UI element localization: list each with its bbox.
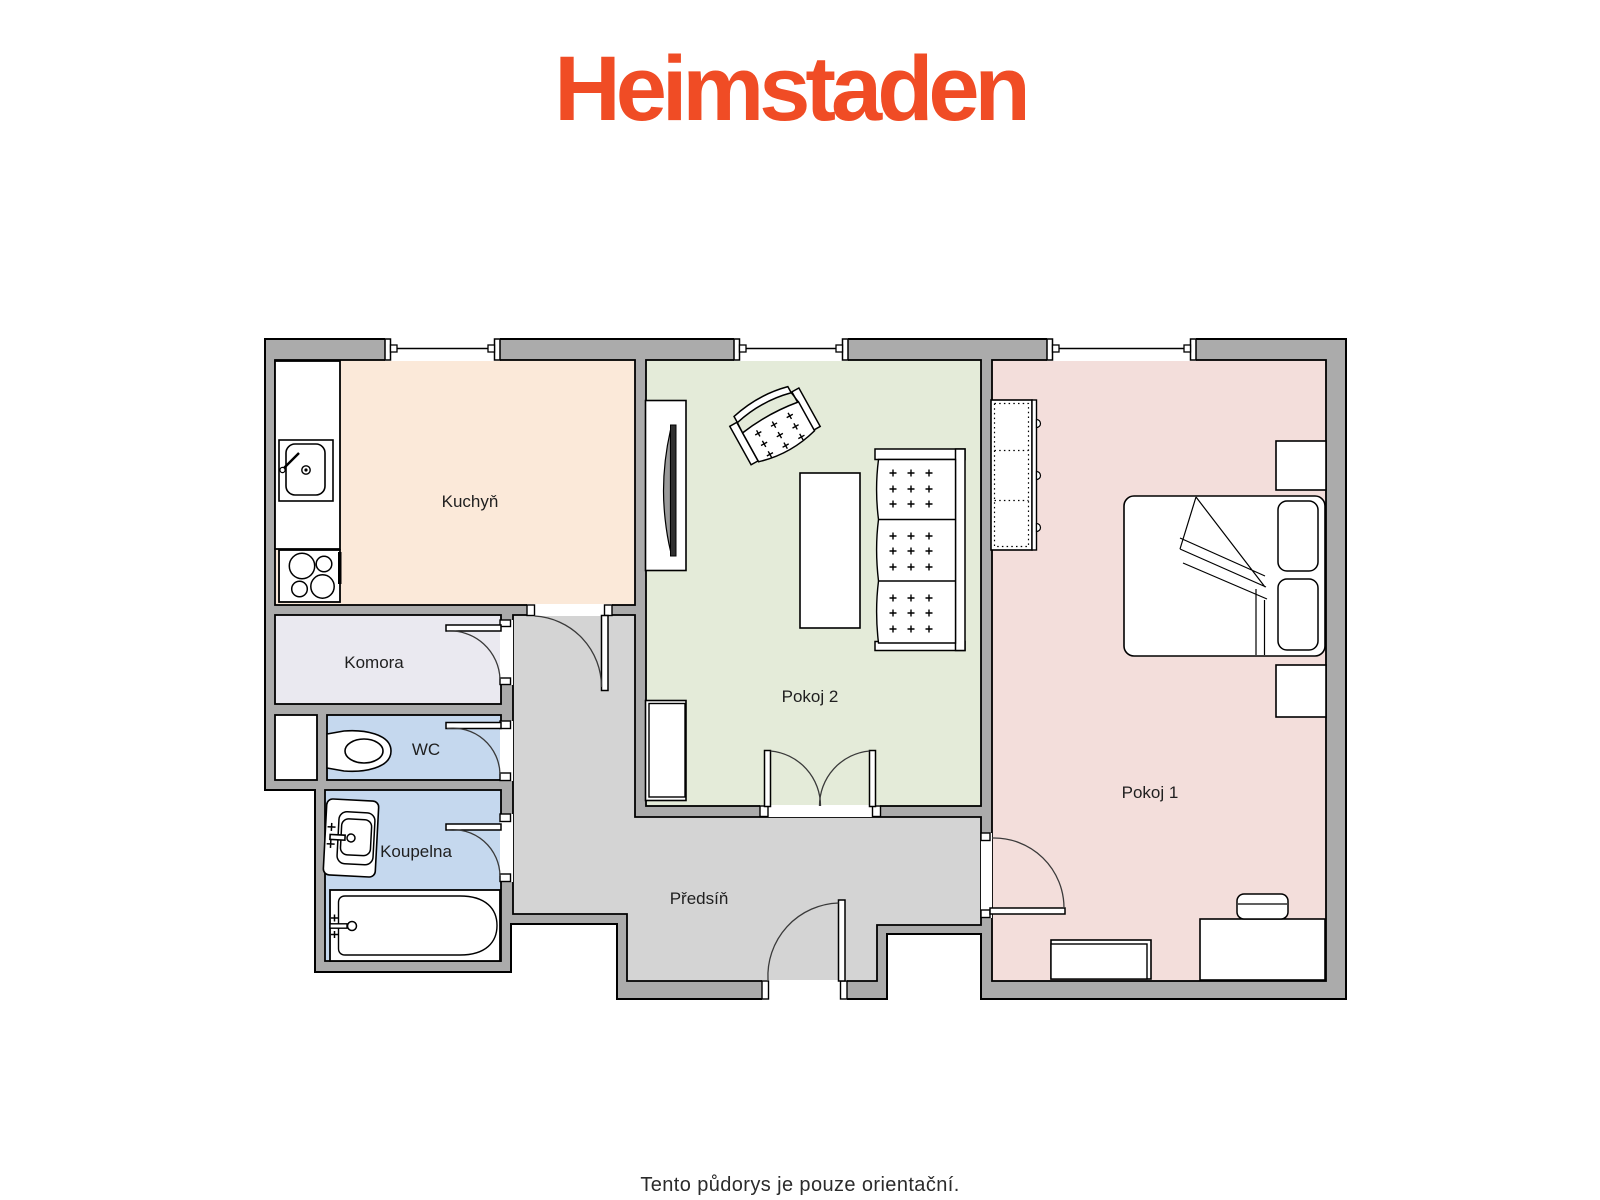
svg-text:Komora: Komora	[344, 653, 404, 672]
svg-text:Heimstaden: Heimstaden	[554, 38, 1026, 140]
svg-text:Tento půdorys je pouze orienta: Tento půdorys je pouze orientační.	[640, 1174, 959, 1196]
svg-text:WC: WC	[412, 740, 440, 759]
svg-text:Pokoj 1: Pokoj 1	[1122, 783, 1179, 802]
svg-text:Pokoj 2: Pokoj 2	[782, 687, 839, 706]
svg-text:Předsíň: Předsíň	[670, 889, 729, 908]
svg-text:Kuchyň: Kuchyň	[442, 492, 499, 511]
svg-text:Koupelna: Koupelna	[380, 842, 452, 861]
